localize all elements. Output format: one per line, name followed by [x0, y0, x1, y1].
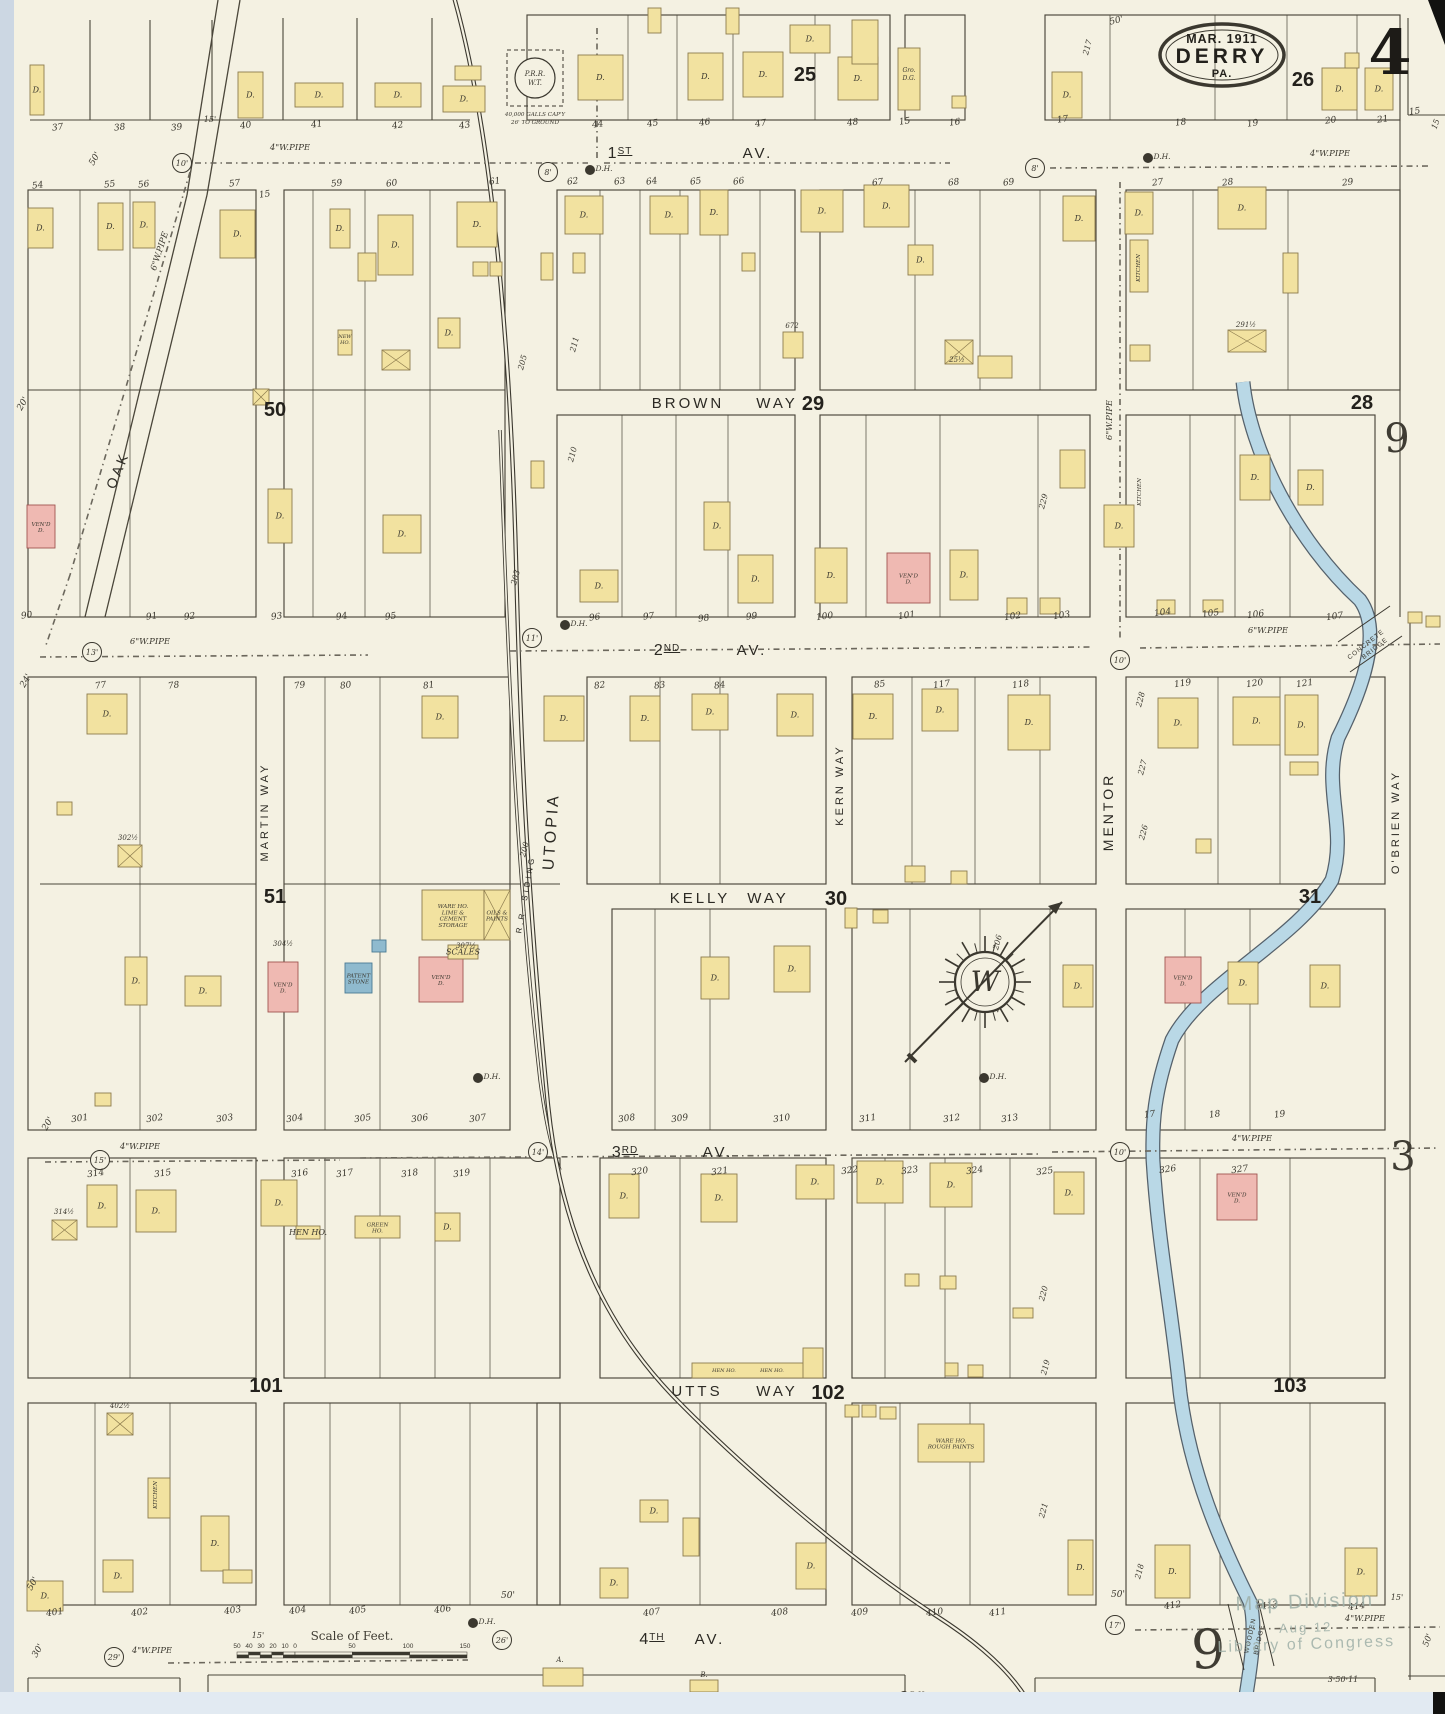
lot-number: 67	[871, 177, 884, 189]
building-label: D.	[817, 207, 827, 216]
building-label: STORAGE	[439, 923, 468, 929]
building-label: D.	[709, 208, 719, 217]
lot-number: 80	[339, 680, 352, 692]
scale-tick: 150	[460, 1643, 471, 1650]
building-frame	[692, 1363, 804, 1378]
scale-segment	[272, 1652, 284, 1655]
map-date: MAR. 1911	[1186, 32, 1258, 46]
lot-number: 84	[713, 680, 726, 692]
building-frame	[905, 1274, 919, 1286]
building-frame	[648, 8, 661, 33]
building-label: PATENT	[346, 973, 372, 979]
building-frame	[880, 1407, 896, 1419]
hydrant-dot	[560, 620, 570, 630]
building-frame	[968, 1365, 983, 1377]
lot-number: 18	[1174, 117, 1187, 129]
lot-number: 18	[1208, 1109, 1221, 1121]
map-state: PA.	[1212, 68, 1233, 80]
building-frame	[490, 262, 502, 276]
block-number: 29	[802, 393, 824, 415]
lot-number: 82	[593, 680, 606, 692]
lot-number: 77	[94, 680, 107, 692]
building-frame	[952, 96, 966, 108]
scale-segment	[295, 1652, 352, 1655]
building-label: D.	[210, 1539, 220, 1548]
building-label: D.	[790, 711, 800, 720]
annotation: B.	[699, 1671, 707, 1679]
scan-edge-left	[0, 0, 14, 1714]
tank-label: W.T.	[528, 79, 542, 87]
pipe-distance-value: 10'	[1114, 1148, 1126, 1157]
lot-number: 57	[228, 178, 241, 190]
block-number: 25	[794, 64, 816, 86]
building-frame	[783, 332, 803, 358]
scan-corner-bottom-right	[1433, 1692, 1445, 1714]
annotation: 50'	[501, 1591, 515, 1601]
pipe-distance-value: 13'	[86, 648, 98, 657]
lot-number: 45	[645, 118, 659, 130]
building-frame	[573, 253, 585, 273]
scale-segment	[283, 1655, 295, 1658]
building-label: ROUGH PAINTS	[927, 1445, 975, 1451]
building-label: D.	[853, 74, 863, 83]
lot-number: 39	[170, 122, 183, 134]
scale-segment	[352, 1655, 409, 1658]
building-label: D.	[35, 224, 45, 233]
hydrant-dot	[979, 1073, 989, 1083]
building-frame	[541, 253, 553, 280]
building-frame	[945, 1363, 958, 1376]
scale-segment	[410, 1652, 467, 1655]
block-number: 101	[249, 1375, 282, 1397]
building-label: D.	[1250, 473, 1260, 482]
pipe-label: 4"W.PIPE	[1231, 1134, 1273, 1144]
building-label: D.	[1251, 717, 1261, 726]
scale-title: Scale of Feet.	[311, 1629, 394, 1643]
lot-number: 79	[293, 680, 306, 692]
lot-number: 64	[645, 176, 658, 188]
building-label: D.	[1075, 1563, 1085, 1572]
annotation: KITCHEN	[153, 1481, 159, 1510]
scale-tick: 100	[403, 1643, 414, 1650]
street-name: BROWN	[652, 395, 725, 412]
building-label: D.	[459, 95, 469, 104]
scale-tick: 30	[257, 1643, 265, 1650]
building-frame	[1426, 616, 1440, 627]
lot-number: 47	[753, 118, 767, 130]
lot-number: 21	[1375, 114, 1389, 126]
pipe-label: 4"W.PIPE	[269, 143, 311, 153]
scale-segment	[352, 1652, 409, 1655]
lot-number: 85	[873, 679, 886, 691]
pipe-label: 4"W.PIPE	[1344, 1614, 1386, 1624]
annotation: KITCHEN	[1136, 254, 1142, 283]
building-label: D.	[649, 1507, 659, 1516]
lot-number: 15	[898, 116, 911, 128]
street-name-vertical: MENTOR	[1100, 773, 1116, 851]
street-name-vertical: MARTIN WAY	[259, 763, 271, 862]
building-label: D.	[935, 706, 945, 715]
building-frame	[1283, 253, 1298, 293]
pipe-label: 4"W.PIPE	[119, 1142, 161, 1152]
lot-number: 41	[309, 119, 323, 131]
street-name: WAY	[756, 395, 798, 412]
building-label: D.	[758, 70, 768, 79]
pipe-distance-value: 14'	[532, 1148, 544, 1157]
street-name: WAY	[756, 1383, 798, 1400]
hydrant-label: D.H.	[569, 619, 587, 628]
building-frame	[845, 1405, 859, 1417]
scale-segment	[410, 1655, 467, 1658]
hydrant-label: D.H.	[1152, 152, 1170, 161]
lot-number: 78	[167, 680, 180, 692]
building-frame	[148, 1478, 170, 1518]
building-label: OILS &	[486, 910, 507, 916]
annotation: HEN HO.	[711, 1368, 736, 1374]
lot-number: 29	[1340, 177, 1354, 189]
lot-number: 97	[642, 611, 655, 623]
building-frame	[726, 8, 739, 34]
building-label: D.	[275, 512, 285, 521]
annotation: HO.	[339, 340, 350, 346]
street-name: UTTS	[671, 1383, 722, 1400]
lot-number: 15	[258, 189, 271, 201]
pipe-distance-value: 8'	[1031, 164, 1038, 173]
building-frame	[1130, 345, 1150, 361]
annotation: Gro.	[902, 67, 915, 74]
annotation: HEN HO.	[759, 1368, 784, 1374]
sheet-number: 4	[1368, 16, 1411, 89]
annotation: 314½	[54, 1208, 74, 1216]
lot-number: 81	[422, 680, 435, 691]
lot-number: 60	[385, 178, 398, 190]
scale-segment	[295, 1655, 352, 1658]
building-label: D.	[274, 1199, 284, 1208]
scale-segment	[237, 1652, 249, 1655]
building-label: D.	[435, 713, 445, 722]
scale-segment	[283, 1652, 295, 1655]
annotation: 302½	[118, 834, 138, 842]
building-label: D.	[1064, 1189, 1074, 1198]
building-label: D.	[105, 222, 115, 231]
lot-number: 42	[390, 120, 404, 132]
building-label: D.	[826, 571, 836, 580]
building-label: D.	[787, 965, 797, 974]
building-label: D.	[750, 575, 760, 584]
hydrant-dot	[473, 1073, 483, 1083]
building-label: D.	[904, 580, 911, 586]
building-label: D.	[946, 1181, 956, 1190]
hydrant-dot	[468, 1618, 478, 1628]
building-label: D.	[664, 211, 674, 220]
pipe-distance-value: 11'	[526, 634, 538, 643]
map-canvas: CONCRETEBRIDGEWOODENBRIDGE4"W.PIPE4"W.PI…	[0, 0, 1445, 1714]
building-label: D.	[710, 974, 720, 983]
pipe-label: 4"W.PIPE	[131, 1646, 173, 1656]
building-label: D.	[1167, 1567, 1177, 1576]
building-frame	[845, 908, 857, 928]
building-frame	[742, 253, 755, 271]
tank-circle	[515, 58, 555, 98]
lot-number: 43	[457, 120, 471, 132]
building-label: D.	[915, 256, 925, 265]
pipe-distance-value: 15'	[94, 1156, 106, 1165]
street-name-vertical: KERN WAY	[834, 744, 846, 825]
scale-segment	[249, 1652, 261, 1655]
building-label: D.	[559, 714, 569, 723]
building-label: D.	[472, 220, 482, 229]
building-label: D.	[393, 91, 403, 100]
building-frame	[978, 356, 1012, 378]
building-frame	[223, 1570, 252, 1583]
paper-background	[0, 0, 1445, 1714]
building-label: D.	[640, 714, 650, 723]
lot-number: 66	[732, 176, 745, 188]
lot-number: 93	[270, 611, 283, 623]
building-label: D.	[314, 91, 324, 100]
building-label: STONE	[348, 980, 369, 986]
pipe-distance-value: 10'	[1114, 656, 1126, 665]
building-frame	[95, 1093, 111, 1106]
scale-segment	[249, 1655, 261, 1658]
lot-number: 54	[31, 180, 44, 192]
building-frame	[57, 802, 72, 815]
annotation: 291½	[1235, 321, 1256, 329]
pipe-label: 6"W.PIPE	[1105, 399, 1115, 440]
adjacent-sheet-number: 9	[1384, 416, 1409, 462]
lot-number: 38	[113, 122, 126, 134]
building-frame	[543, 1668, 583, 1686]
scale-segment	[260, 1652, 272, 1655]
pipe-distance-value: 26'	[495, 1636, 508, 1645]
building-frame	[531, 461, 544, 488]
building-label: VEN'D	[431, 975, 451, 981]
sanborn-map-sheet: CONCRETEBRIDGEWOODENBRIDGE4"W.PIPE4"W.PI…	[0, 0, 1445, 1714]
building-label: D.	[1134, 209, 1144, 218]
block-number: 50	[264, 399, 286, 421]
building-frame	[905, 866, 925, 882]
building-frame	[1345, 53, 1359, 68]
block-number: 31	[1299, 886, 1321, 908]
lot-number: 63	[613, 176, 626, 188]
building-label: GREEN	[367, 1222, 390, 1228]
building-label: D.	[1062, 91, 1072, 100]
adjacent-sheet-number: 3	[1390, 1134, 1415, 1180]
building-label: HO.	[371, 1229, 383, 1235]
annotation: 50'	[1111, 1590, 1125, 1600]
annotation: 40,000 GALLS CAP'Y	[504, 112, 567, 118]
building-label: D.	[151, 1207, 161, 1216]
building-label: D.	[579, 211, 589, 220]
building-label: LIME &	[441, 910, 465, 916]
lot-number: 62	[566, 176, 579, 188]
lot-number: 46	[697, 117, 711, 129]
building-label: D.	[595, 73, 605, 82]
scale-segment	[260, 1655, 272, 1658]
building-label: D.	[1296, 721, 1306, 730]
building-label: D.	[700, 72, 710, 81]
building-label: HEN HO.	[288, 1228, 327, 1237]
lot-number: 16	[948, 117, 961, 129]
lot-number: 96	[588, 612, 601, 624]
building-label: D.	[1320, 982, 1330, 991]
annotation: 672	[785, 322, 799, 330]
scale-segment	[272, 1655, 284, 1658]
lot-number: 19	[1273, 1109, 1286, 1121]
building-label: PAINTS	[485, 917, 508, 923]
building-label: D.	[113, 1572, 123, 1581]
building-stone	[372, 940, 386, 952]
lot-number: 15	[1408, 106, 1421, 118]
building-frame	[940, 1276, 956, 1289]
street-name: AV.	[695, 1631, 726, 1648]
scale-tick: 10	[281, 1643, 289, 1650]
block-number: 102	[811, 1382, 844, 1404]
lot-number: 19	[1246, 118, 1259, 130]
building-label: D.	[714, 1194, 724, 1203]
lot-number: 65	[689, 176, 702, 188]
building-frame	[1013, 1308, 1033, 1318]
lot-number: 17	[1143, 1109, 1156, 1121]
annotation: KITCHEN	[1137, 478, 1143, 507]
building-label: D.	[245, 91, 255, 100]
annotation: 3·50·11	[1328, 1675, 1359, 1684]
pipe-label: 6"W.PIPE	[130, 637, 171, 647]
lot-number: 40	[238, 120, 252, 132]
building-label: D.	[1237, 204, 1247, 213]
building-label: D.	[806, 1562, 816, 1571]
building-frame	[683, 1518, 699, 1556]
building-label: WARE HO.	[438, 904, 469, 910]
building-label: D.	[198, 987, 208, 996]
lot-number: 56	[137, 179, 150, 191]
building-label: D.	[1334, 85, 1344, 94]
building-label: VEN'D	[31, 522, 51, 528]
lot-number: 59	[330, 178, 343, 190]
building-frame	[690, 1680, 718, 1692]
building-label: D.	[437, 981, 444, 987]
building-frame	[1408, 612, 1422, 623]
tank-label: P.R.R.	[524, 70, 546, 78]
compass-monogram: W	[971, 965, 1002, 998]
building-label: VEN'D	[273, 982, 293, 988]
hydrant-dot	[1143, 153, 1153, 163]
annotation: 402½	[109, 1402, 130, 1410]
building-frame	[852, 20, 878, 64]
building-label: VEN'D	[899, 573, 919, 579]
building-label: D.	[875, 1178, 885, 1187]
building-label: D.	[232, 230, 242, 239]
building-label: D.	[97, 1202, 107, 1211]
pipe-distance-value: 10'	[176, 159, 188, 168]
block-number: 28	[1351, 392, 1373, 414]
lot-number: 37	[51, 122, 64, 134]
annotation: 15'	[252, 1631, 264, 1640]
block-number: 26	[1292, 69, 1314, 91]
pipe-distance-value: 17'	[1109, 1621, 1121, 1630]
lot-number: 90	[20, 610, 33, 622]
street-name: AV.	[703, 1144, 734, 1161]
building-label: D.	[810, 1178, 820, 1187]
building-label: D.	[705, 708, 715, 717]
lot-number: 27	[1150, 177, 1164, 189]
building-frame	[803, 1348, 823, 1378]
building-label: D.	[279, 989, 286, 995]
building-label: D.	[868, 712, 878, 721]
pipe-label: 4"W.PIPE	[1309, 149, 1351, 159]
building-frame	[1196, 839, 1211, 853]
annotation: 15'	[1391, 1593, 1403, 1602]
scale-segment	[237, 1655, 249, 1658]
street-name: KELLY	[670, 890, 731, 907]
scan-edge-bottom	[0, 1692, 1445, 1714]
lot-number: 98	[697, 613, 710, 625]
building-label: CEMENT	[440, 917, 468, 923]
hydrant-label: D.H.	[988, 1072, 1006, 1081]
scale-tick: 0	[293, 1643, 297, 1650]
lot-number: 95	[384, 611, 397, 623]
building-frame	[358, 253, 376, 281]
block-number: 103	[1273, 1375, 1306, 1397]
building-label: D.	[131, 977, 141, 986]
pipe-distance-value: 29'	[107, 1653, 120, 1662]
building-label: D.	[1114, 522, 1124, 531]
annotation: D.G.	[902, 75, 916, 82]
lot-number: 17	[1056, 114, 1069, 126]
map-city: DERRY	[1176, 45, 1269, 68]
annotation: 15'	[204, 115, 216, 124]
building-frame	[455, 66, 481, 80]
building-label: D.	[397, 530, 407, 539]
street-name-vertical: O'BRIEN WAY	[1390, 770, 1402, 874]
lot-number: 99	[745, 611, 758, 623]
hydrant-label: D.H.	[594, 164, 612, 173]
lot-number: 92	[183, 611, 196, 623]
building-label: D.	[1233, 1199, 1240, 1205]
hydrant-label: D.H.	[477, 1617, 495, 1626]
building-label: D.	[102, 710, 112, 719]
lot-number: 68	[947, 177, 960, 189]
street-name: WAY	[747, 890, 789, 907]
building-label: D.	[32, 86, 42, 95]
building-label: D.	[1356, 1568, 1366, 1577]
building-frame	[862, 1405, 876, 1417]
building-label: D.	[1305, 483, 1315, 492]
building-frame	[873, 910, 888, 923]
building-label: D.	[1173, 719, 1183, 728]
building-label: D.	[1179, 982, 1186, 988]
annotation: 26' TO GROUND	[510, 120, 559, 126]
lot-number: 20	[1323, 115, 1337, 127]
building-label: D.	[881, 202, 891, 211]
annotation: A.	[555, 1656, 563, 1664]
pipe-label: 6"W.PIPE	[1248, 626, 1289, 636]
building-label: D.	[40, 1592, 50, 1601]
building-label: D.	[609, 1579, 619, 1588]
street-name: AV.	[737, 642, 768, 659]
building-label: D.	[1073, 982, 1083, 991]
building-frame	[1290, 762, 1318, 775]
building-label: D.	[139, 221, 149, 230]
building-label: D.	[594, 582, 604, 591]
lot-number: 28	[1220, 177, 1234, 189]
building-label: VEN'D	[1173, 975, 1193, 981]
scale-tick: 40	[245, 1643, 253, 1650]
building-frame	[473, 262, 488, 276]
lot-number: 55	[103, 179, 116, 191]
annotation: 304½	[273, 940, 293, 948]
lot-number: 44	[590, 119, 604, 131]
